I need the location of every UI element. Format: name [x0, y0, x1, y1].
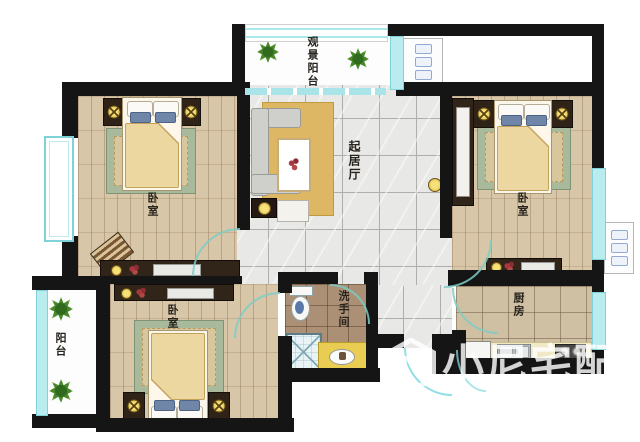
watermark: N 小尼宅配	[386, 338, 618, 392]
bed	[494, 100, 552, 194]
nightstand	[180, 98, 201, 126]
window	[390, 36, 404, 90]
sink-icon	[318, 342, 368, 370]
sliding-door	[245, 88, 386, 95]
nightstand	[473, 100, 495, 128]
pillow	[526, 115, 547, 126]
plant-icon	[257, 41, 279, 63]
room-label-bathroom: 洗手间	[337, 290, 348, 329]
blanket-fold	[151, 380, 171, 400]
lamp-icon	[184, 106, 197, 119]
nightstand	[208, 392, 230, 420]
plant-icon	[49, 297, 73, 321]
flowers-icon	[128, 264, 140, 275]
lamp-icon	[556, 108, 569, 121]
bowl-icon	[111, 265, 122, 276]
blanket-fold	[529, 126, 549, 146]
nightstand	[103, 98, 124, 126]
wall	[62, 82, 238, 96]
wall	[96, 418, 294, 432]
lamp-icon	[107, 106, 120, 119]
room-label-bedroom-top-left: 卧室	[146, 192, 157, 218]
nightstand	[551, 100, 573, 128]
room-label-balcony: 阳台	[54, 332, 65, 358]
room-label-bedroom-right: 卧室	[516, 192, 527, 218]
wall	[278, 272, 338, 284]
wall	[366, 284, 378, 372]
wardrobe-mirror	[456, 107, 470, 197]
wall	[440, 82, 452, 238]
wardrobe	[452, 98, 474, 206]
wall	[237, 82, 250, 230]
lamp-icon	[213, 400, 226, 413]
ac-unit-icon	[604, 222, 634, 274]
wall	[278, 336, 292, 432]
bed	[148, 330, 208, 426]
tv-icon	[258, 202, 271, 215]
wall	[278, 368, 380, 382]
tv-cabinet	[251, 198, 277, 218]
pillow	[179, 400, 200, 411]
flowers-icon	[287, 156, 300, 172]
window	[592, 168, 606, 260]
ac-unit-icon	[403, 38, 443, 86]
watermark-text: 小尼宅配	[442, 344, 618, 386]
blanket	[125, 123, 179, 188]
bay-window	[44, 136, 74, 242]
room-label-view-balcony: 观景阳台	[306, 36, 317, 88]
watermark-logo-icon: N	[386, 338, 436, 392]
wall	[364, 272, 378, 284]
dresser	[114, 284, 234, 301]
wall	[386, 24, 604, 36]
pillow	[130, 112, 151, 123]
pillow	[501, 115, 522, 126]
room-label-kitchen: 厨房	[512, 292, 523, 318]
bed	[122, 97, 182, 191]
floor-plan: 观景阳台 卧室 起居厅 卧室 卧室 洗手间 厨房 阳台 N 小尼宅配	[0, 0, 640, 442]
watermark-logo-letter: N	[402, 350, 421, 380]
coffee-table	[277, 138, 311, 192]
pillow	[154, 400, 175, 411]
room-label-bedroom-bottom: 卧室	[166, 304, 177, 330]
blanket	[151, 333, 205, 400]
wall	[232, 24, 245, 88]
wall	[396, 82, 604, 96]
window	[36, 290, 48, 416]
side-table	[277, 200, 309, 222]
pillow	[155, 112, 176, 123]
wall	[592, 36, 604, 168]
plant-icon	[347, 48, 369, 70]
flowers-icon	[135, 287, 147, 298]
tray-icon	[167, 288, 214, 299]
nightstand	[123, 392, 145, 420]
blanket-fold	[159, 123, 179, 143]
wall	[96, 276, 110, 432]
bowl-icon	[121, 288, 132, 299]
wall	[96, 276, 242, 284]
lamp-icon	[478, 108, 491, 121]
plant-icon	[49, 379, 73, 403]
toilet-icon	[291, 296, 310, 321]
room-label-living-room: 起居厅	[348, 140, 360, 182]
wall	[62, 82, 78, 138]
wall	[278, 283, 292, 293]
lamp-icon	[128, 400, 141, 413]
blanket	[497, 126, 549, 191]
toilet-icon	[289, 286, 313, 296]
